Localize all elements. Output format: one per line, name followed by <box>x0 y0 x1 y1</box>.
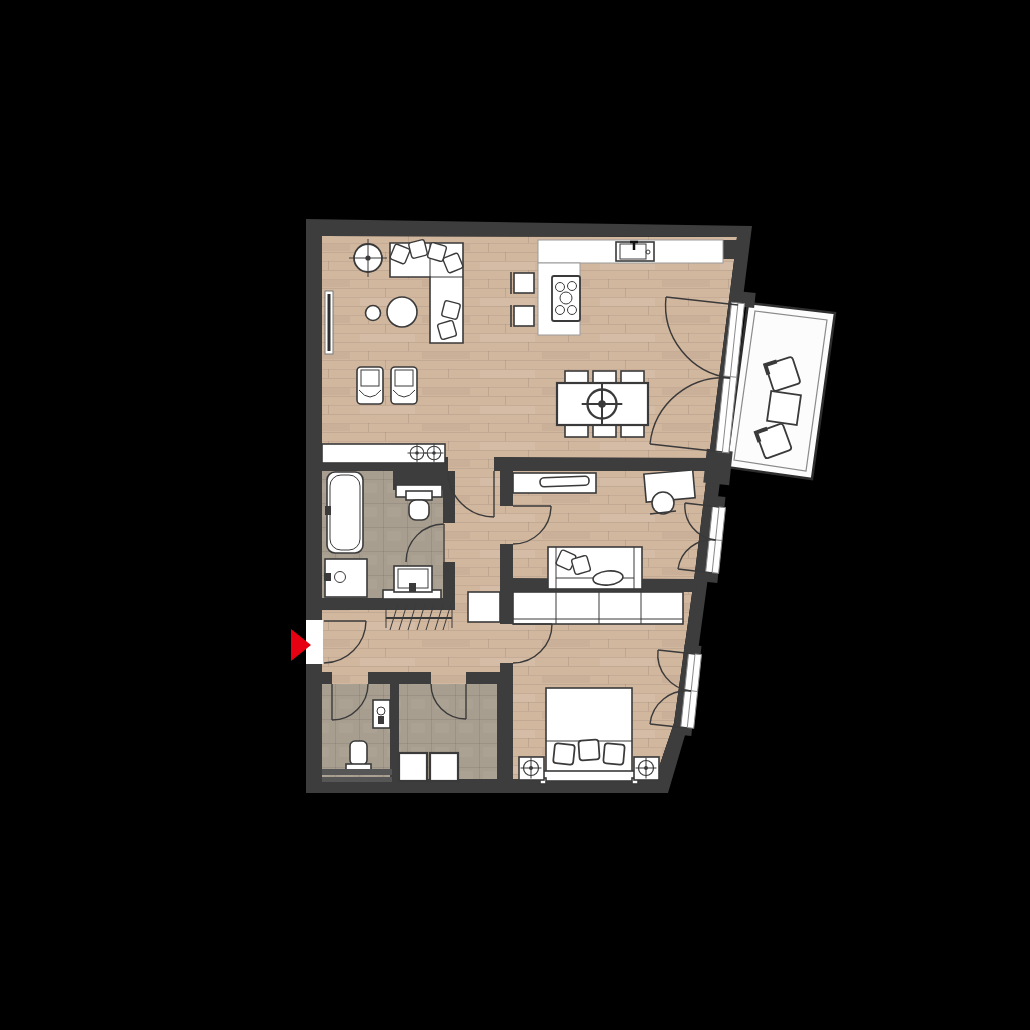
floor-plan-canvas <box>0 0 1030 1030</box>
washing-machine <box>399 753 427 781</box>
side-table-round <box>366 306 381 321</box>
kitchen-sink <box>616 241 654 261</box>
dining-set <box>557 371 648 437</box>
coffee-table-round <box>387 297 417 327</box>
kitchen-end-pier <box>723 240 740 259</box>
dryer <box>430 753 458 781</box>
bar-stool <box>511 305 534 327</box>
tv-icon <box>540 476 589 487</box>
wall-hall-office-upper <box>500 471 513 506</box>
wall-hall-wc-mid <box>368 672 431 684</box>
tv-lowboard <box>513 473 596 493</box>
wc-shelf <box>322 769 392 775</box>
wc-toilet <box>346 741 371 773</box>
hall-cabinet <box>468 592 500 622</box>
floor-plan-svg <box>0 0 1030 1030</box>
wall-tv <box>325 291 333 354</box>
armchair <box>357 367 383 404</box>
toilet <box>406 491 432 520</box>
wardrobe <box>513 592 683 624</box>
wall-living-office <box>494 457 722 471</box>
nightstand-with-lamp <box>519 757 544 780</box>
two-seat-sofa <box>548 547 642 589</box>
headboard <box>542 771 636 781</box>
kitchen-counter <box>538 240 723 263</box>
washbasin <box>324 559 367 597</box>
bathtub <box>325 472 363 553</box>
bar-stool <box>511 272 534 294</box>
wc-shelf <box>322 777 392 782</box>
wall-hall-storage-stub <box>466 672 503 684</box>
wall-bathroom-hall-lower <box>443 562 455 602</box>
kitchen-island <box>538 263 580 335</box>
nightstand-with-lamp <box>634 757 659 780</box>
entrance-opening <box>306 620 323 664</box>
cooktop <box>552 276 580 321</box>
wall-wc-storage <box>390 684 399 779</box>
armchair <box>391 367 417 404</box>
wc-washbasin <box>373 700 390 728</box>
wall-hall-wc-stub <box>322 672 332 684</box>
double-bed <box>540 688 638 784</box>
balcony-table <box>767 391 801 425</box>
sideboard <box>322 443 445 463</box>
wall-storage-bedroom <box>497 684 513 779</box>
wall-hall-bedroom-upper <box>500 592 513 624</box>
